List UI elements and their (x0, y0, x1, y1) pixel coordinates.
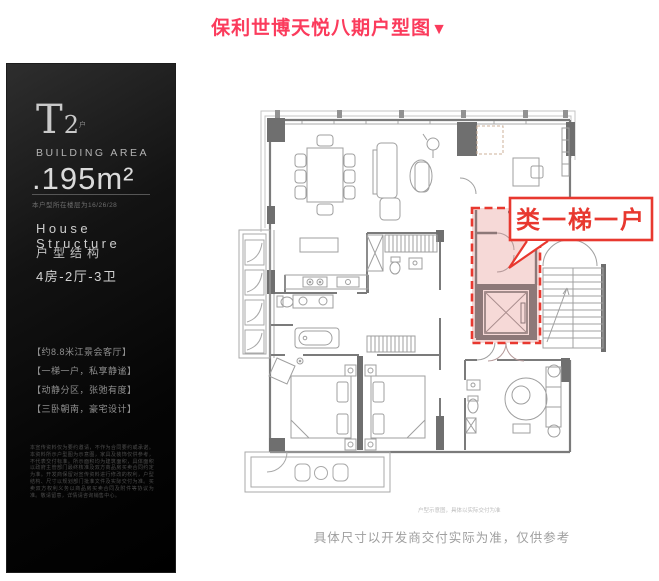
feature-list: 【约8.8米江景会客厅】 【一梯一户，私享静谧】 【动静分区，张弛有度】 【三卧… (32, 343, 137, 419)
room-layout: 4房-2厅-3卫 (36, 266, 117, 285)
legal-disclaimer: 本宣传资料仅为要约邀请，不作为合同要约或承诺。本资料所示户型图为示意图，家具及装… (30, 445, 154, 499)
floorplan-page: 保利世博天悦八期户型图▼ T2户 BUILDING AREA .195m² 本户… (0, 0, 659, 581)
structural-dashed-outline (477, 126, 503, 154)
feature-item: 【一梯一户，私享静谧】 (32, 362, 137, 381)
unit-info-card: T2户 BUILDING AREA .195m² 本户型所在楼层为16/26/2… (6, 63, 176, 573)
stairs (543, 240, 603, 348)
bedroom-2-bed (365, 365, 425, 450)
feature-item: 【约8.8米江景会客厅】 (32, 343, 137, 362)
terrace (245, 452, 390, 492)
master-lounge (466, 342, 561, 437)
house-structure-cn: 户型结构 (36, 244, 104, 261)
divider (32, 194, 150, 195)
main-bath (269, 295, 339, 384)
page-title: 保利世博天悦八期户型图▼ (0, 13, 659, 40)
kitchen (285, 238, 368, 289)
building-area-value: .195m² (32, 161, 134, 197)
sofa-group (373, 134, 439, 220)
unit-code-suffix: 户 (79, 121, 86, 129)
wardrobe-strip (367, 336, 415, 352)
wall-blocks (267, 118, 606, 452)
down-triangle-icon: ▼ (431, 21, 448, 38)
area-footnote: 本户型所在楼层为16/26/28 (32, 199, 117, 209)
callout-label: 类一梯一户 (516, 206, 646, 234)
closet-and-duct (367, 235, 437, 274)
floorplan-svg: 类一梯一户 户型示意图，具体以实际交付为准 (225, 80, 659, 540)
feature-item: 【动静分区，张弛有度】 (32, 381, 137, 400)
bedroom-1-bed (291, 365, 356, 450)
unit-code: T2户 (36, 97, 86, 143)
page-title-text: 保利世博天悦八期户型图 (211, 18, 431, 39)
unit-code-letter: T (36, 97, 64, 143)
dining-table (295, 135, 355, 215)
planter-icon (245, 240, 264, 353)
feature-item: 【三卧朝南，豪宅设计】 (32, 400, 137, 419)
unit-code-number: 2 (64, 111, 79, 139)
plan-inner-note: 户型示意图，具体以实际交付为准 (418, 506, 501, 514)
floorplan-drawing: 类一梯一户 户型示意图，具体以实际交付为准 (225, 80, 659, 540)
footer-note: 具体尺寸以开发商交付实际为准，仅供参考 (225, 527, 659, 546)
balcony-left (239, 230, 270, 358)
building-area-label: BUILDING AREA (36, 147, 149, 159)
